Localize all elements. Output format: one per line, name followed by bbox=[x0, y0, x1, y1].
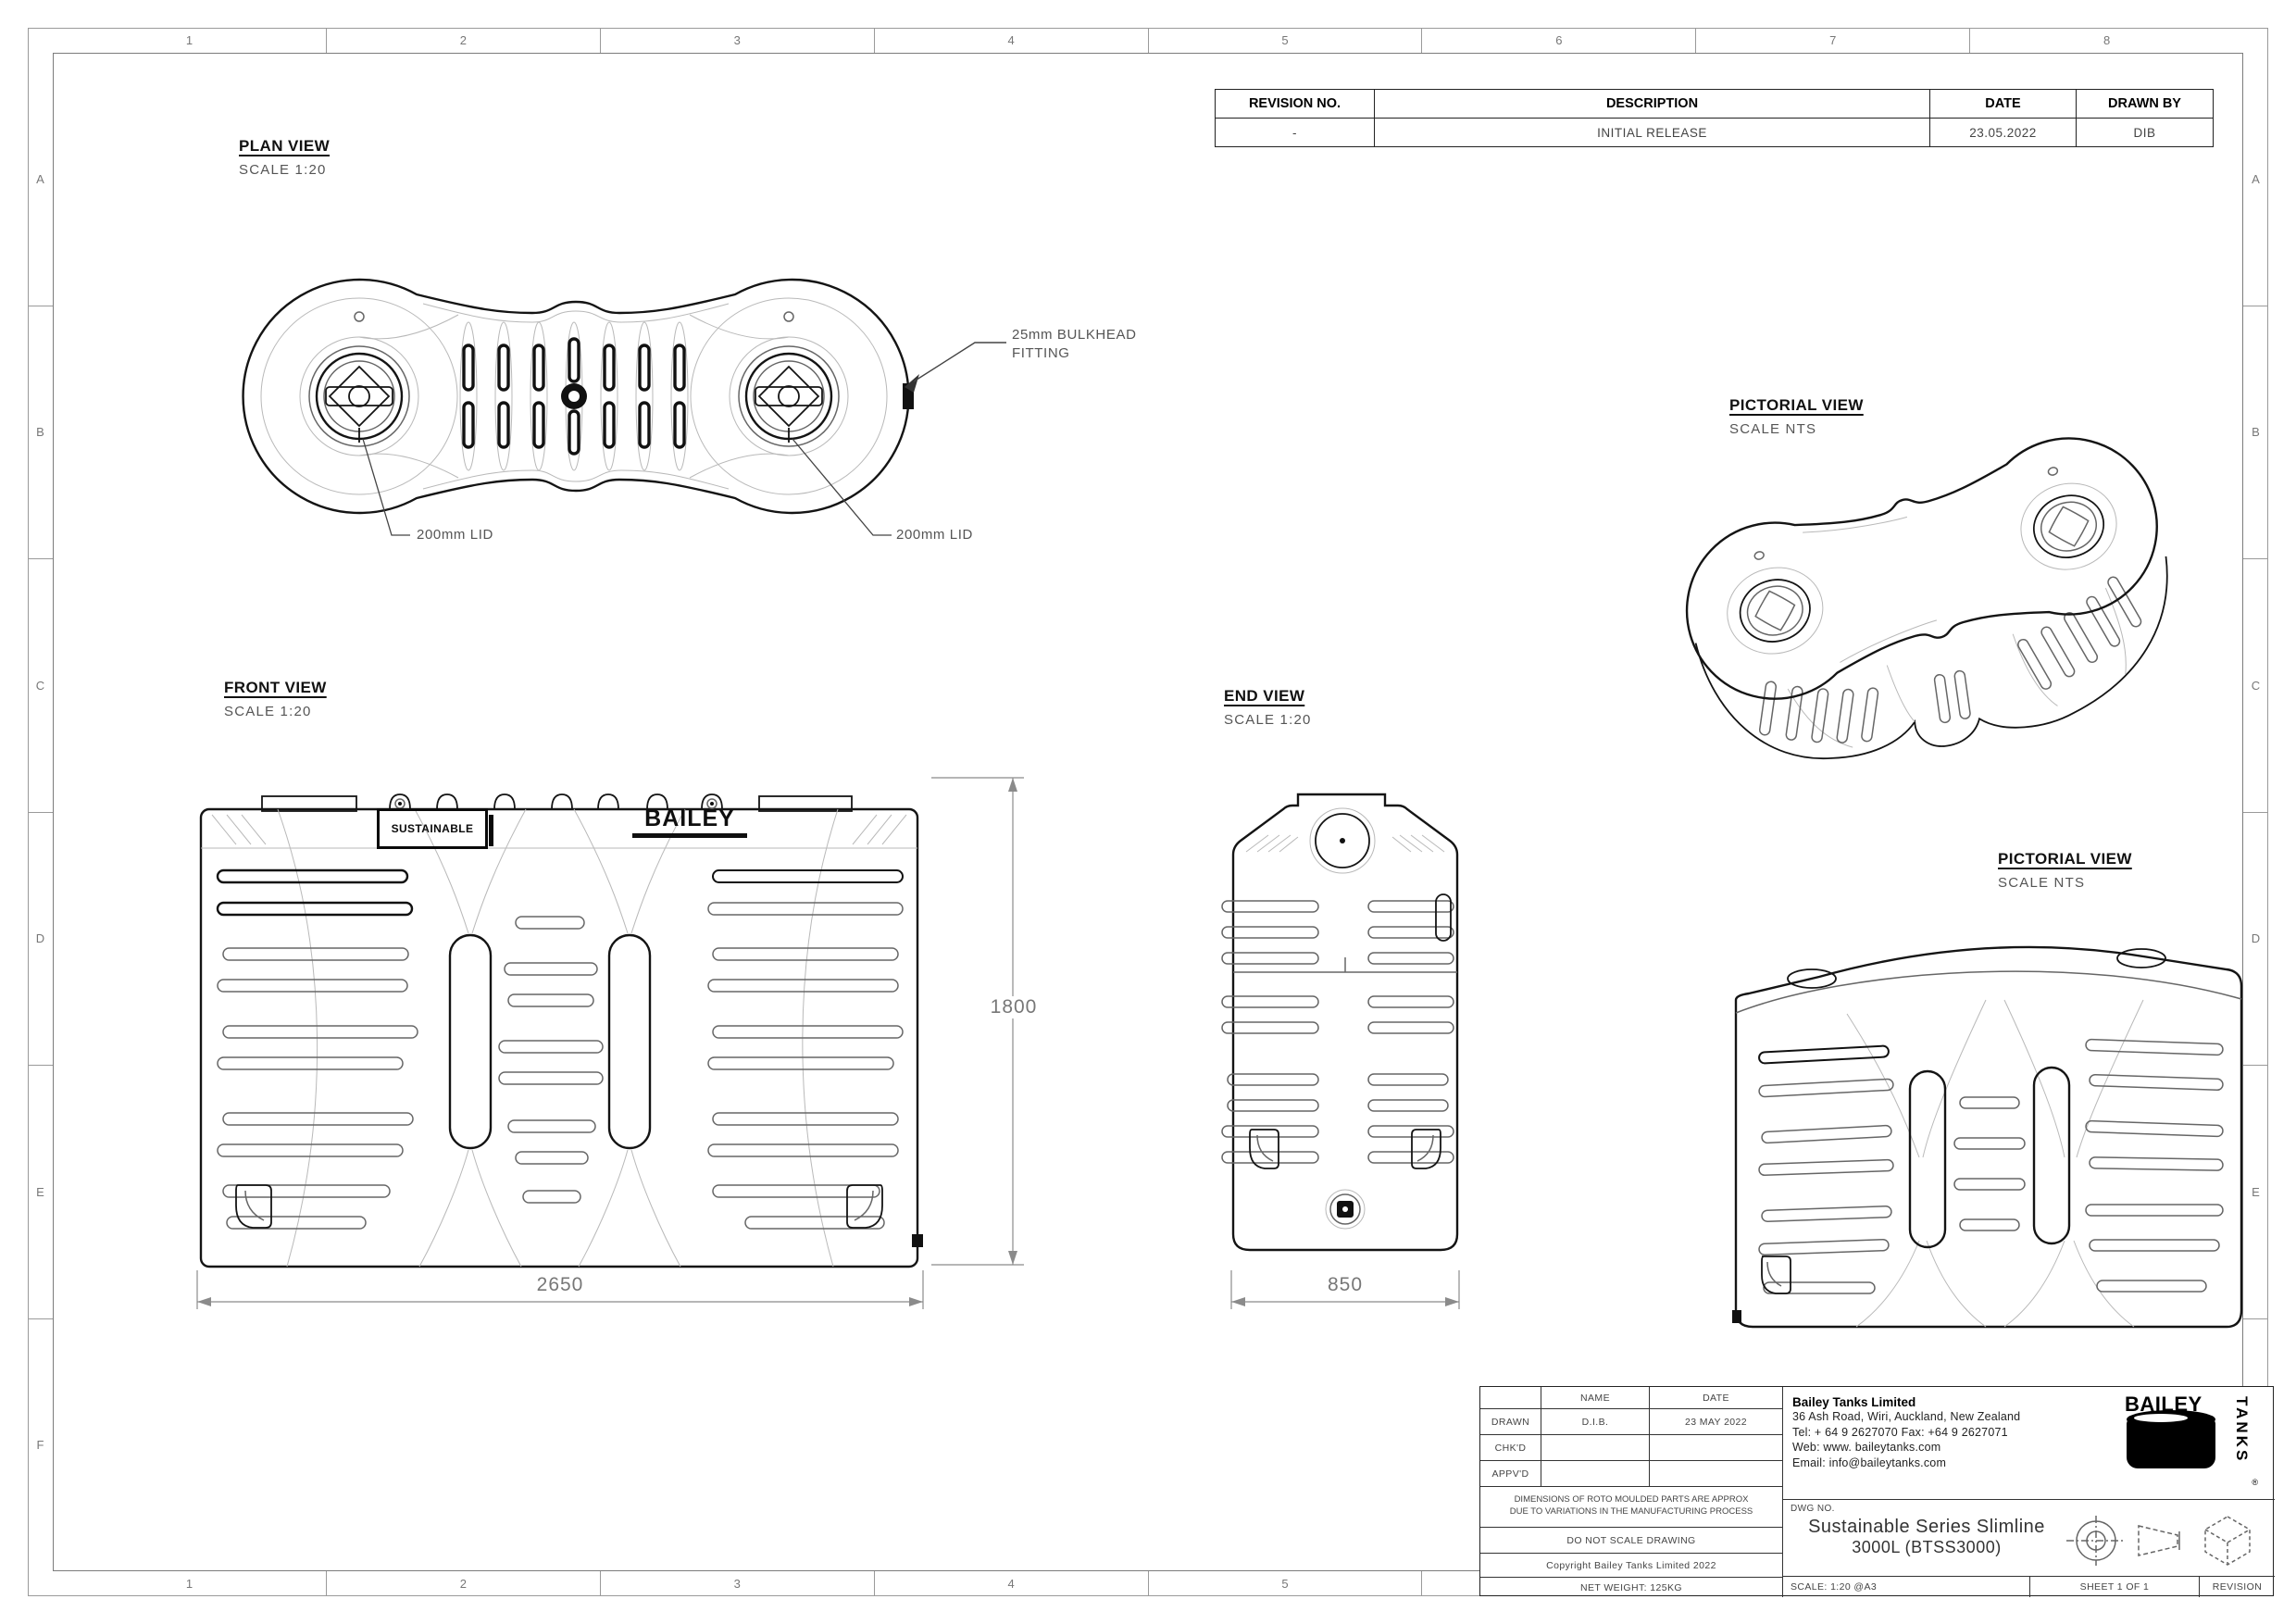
grid-column-label: 1 bbox=[53, 28, 326, 53]
bailey-tanks-logo: BAILEY TANKS ® bbox=[2125, 1394, 2264, 1498]
company-block: Bailey Tanks Limited 36 Ash Road, Wiri, … bbox=[1783, 1387, 2275, 1500]
checked-date bbox=[1650, 1435, 1783, 1461]
front-view-title: FRONT VIEW bbox=[224, 679, 327, 697]
drawn-by-header: DRAWN BY bbox=[2077, 90, 2214, 119]
revision-no-value: - bbox=[1216, 119, 1375, 147]
plan-view-title: PLAN VIEW bbox=[239, 137, 330, 156]
scale-cell: SCALE: 1:20 @A3 bbox=[1783, 1577, 2030, 1597]
grid-row-label: B bbox=[28, 306, 53, 559]
lid-callout-left: 200mm LID bbox=[417, 526, 493, 544]
grid-row-label: E bbox=[28, 1065, 53, 1318]
end-view-label: END VIEW SCALE 1:20 bbox=[1224, 687, 1312, 728]
end-view-scale: SCALE 1:20 bbox=[1224, 712, 1312, 728]
drawn-label: DRAWN bbox=[1480, 1409, 1541, 1435]
drawing-sheet: 12345678 12345678 ABCDEF ABCDEF REVISION… bbox=[0, 0, 2296, 1624]
approval-blank-header bbox=[1480, 1387, 1541, 1409]
pictorial-top-lid-left bbox=[1712, 539, 1833, 665]
pictorial-bottom-outlet bbox=[1762, 1256, 1791, 1293]
grid-row-label: A bbox=[2243, 53, 2268, 306]
drawn-date: 23 MAY 2022 bbox=[1650, 1409, 1783, 1435]
grid-column-label: 5 bbox=[1148, 28, 1422, 53]
grid-column-label: 6 bbox=[1421, 28, 1695, 53]
drawn-name: D.I.B. bbox=[1541, 1409, 1650, 1435]
grid-column-label: 1 bbox=[53, 1571, 326, 1596]
description-value: INITIAL RELEASE bbox=[1375, 119, 1930, 147]
end-drain-fitting bbox=[1326, 1190, 1365, 1229]
grid-column-label: 7 bbox=[1695, 28, 1969, 53]
do-not-scale-note: DO NOT SCALE DRAWING bbox=[1480, 1528, 1783, 1554]
front-view-scale: SCALE 1:20 bbox=[224, 704, 327, 719]
description-header: DESCRIPTION bbox=[1375, 90, 1930, 119]
grid-column-label: 8 bbox=[1969, 28, 2243, 53]
grid-band-left: ABCDEF bbox=[28, 53, 53, 1571]
grid-band-top: 12345678 bbox=[53, 28, 2243, 53]
lid-callout-right: 200mm LID bbox=[896, 526, 973, 544]
revision-table: REVISION NO. DESCRIPTION DATE DRAWN BY -… bbox=[1215, 89, 2214, 147]
checked-label: CHK'D bbox=[1480, 1435, 1541, 1461]
approved-date bbox=[1650, 1461, 1783, 1487]
plan-view-label: PLAN VIEW SCALE 1:20 bbox=[239, 137, 330, 178]
front-outlet-right bbox=[847, 1185, 882, 1228]
end-view-title: END VIEW bbox=[1224, 687, 1312, 706]
logo-tanks-text: TANKS bbox=[2232, 1396, 2251, 1463]
revision-cell: REVISION bbox=[2200, 1577, 2275, 1597]
tolerance-note-line1: DIMENSIONS OF ROTO MOULDED PARTS ARE APP… bbox=[1480, 1493, 1782, 1505]
pictorial-bottom-label: PICTORIAL VIEW SCALE NTS bbox=[1998, 850, 2132, 891]
approved-name bbox=[1541, 1461, 1650, 1487]
grid-column-label: 5 bbox=[1148, 1571, 1422, 1596]
width-dimension: 2650 bbox=[505, 1274, 616, 1296]
height-dimension-lines bbox=[928, 767, 1029, 1276]
revision-no-header: REVISION NO. bbox=[1216, 90, 1375, 119]
grid-row-label: F bbox=[28, 1318, 53, 1572]
date-header: DATE bbox=[1930, 90, 2077, 119]
registered-mark: ® bbox=[2252, 1478, 2258, 1487]
height-dimension: 1800 bbox=[980, 996, 1047, 1018]
grid-row-label: C bbox=[2243, 558, 2268, 812]
plan-view-drawing bbox=[181, 257, 1014, 563]
tolerance-note-line2: DUE TO VARIATIONS IN THE MANUFACTURING P… bbox=[1480, 1505, 1782, 1518]
bailey-tagline-bar bbox=[632, 833, 747, 838]
title-block: NAME DATE DRAWN D.I.B. 23 MAY 2022 CHK'D… bbox=[1479, 1386, 2274, 1596]
bailey-moulded-logo-text: BAILEY bbox=[632, 807, 747, 831]
tolerance-note: DIMENSIONS OF ROTO MOULDED PARTS ARE APP… bbox=[1480, 1487, 1783, 1528]
sustainable-badge: SUSTAINABLE bbox=[377, 808, 488, 849]
front-view-label: FRONT VIEW SCALE 1:20 bbox=[224, 679, 327, 719]
bulkhead-fitting-callout: 25mm BULKHEAD FITTING bbox=[1012, 326, 1151, 364]
third-angle-projection-icon bbox=[2066, 1513, 2205, 1568]
grid-column-label: 2 bbox=[326, 28, 600, 53]
end-width-dimension: 850 bbox=[1290, 1274, 1401, 1296]
sheet-cell: SHEET 1 OF 1 bbox=[2030, 1577, 2200, 1597]
plan-view-scale: SCALE 1:20 bbox=[239, 162, 330, 178]
company-web: Web: www. baileytanks.com bbox=[1792, 1440, 2121, 1455]
grid-row-label: A bbox=[28, 53, 53, 306]
pictorial-bottom-title: PICTORIAL VIEW bbox=[1998, 850, 2132, 868]
drawn-by-value: DIB bbox=[2077, 119, 2214, 147]
pictorial-top-lid-right bbox=[2005, 455, 2127, 581]
checked-name bbox=[1541, 1435, 1650, 1461]
approval-date-header: DATE bbox=[1650, 1387, 1783, 1409]
grid-column-label: 3 bbox=[600, 28, 874, 53]
front-view-drawing bbox=[190, 767, 930, 1276]
front-recess-left bbox=[450, 935, 491, 1148]
company-phone: Tel: + 64 9 2627070 Fax: +64 9 2627071 bbox=[1792, 1425, 2121, 1441]
net-weight: NET WEIGHT: 125KG bbox=[1480, 1578, 1783, 1597]
company-address: 36 Ash Road, Wiri, Auckland, New Zealand bbox=[1792, 1409, 2121, 1425]
company-email: Email: info@baileytanks.com bbox=[1792, 1455, 2121, 1471]
date-value: 23.05.2022 bbox=[1930, 119, 2077, 147]
grid-column-label: 4 bbox=[874, 1571, 1148, 1596]
end-view-drawing bbox=[1220, 767, 1470, 1271]
grid-column-label: 4 bbox=[874, 28, 1148, 53]
tank-icon bbox=[2127, 1418, 2215, 1468]
drawing-title-line2: 3000L (BTSS3000) bbox=[1783, 1538, 2070, 1557]
grid-row-label: B bbox=[2243, 306, 2268, 559]
pictorial-bottom-scale: SCALE NTS bbox=[1998, 875, 2132, 891]
front-recess-right bbox=[609, 935, 650, 1148]
approved-label: APPV'D bbox=[1480, 1461, 1541, 1487]
company-name: Bailey Tanks Limited bbox=[1792, 1395, 2121, 1409]
dwg-no-block: DWG NO. Sustainable Series Slimline 3000… bbox=[1783, 1500, 2275, 1577]
grid-row-label: C bbox=[28, 558, 53, 812]
grid-column-label: 2 bbox=[326, 1571, 600, 1596]
pictorial-view-bottom-drawing bbox=[1708, 912, 2264, 1356]
drawing-title-line1: Sustainable Series Slimline bbox=[1783, 1517, 2070, 1538]
bailey-moulded-logo: BAILEY bbox=[632, 807, 747, 838]
sustainable-badge-text: SUSTAINABLE bbox=[392, 822, 474, 835]
approval-name-header: NAME bbox=[1541, 1387, 1650, 1409]
pictorial-view-top-drawing bbox=[1648, 412, 2240, 847]
grid-row-label: D bbox=[28, 812, 53, 1066]
grid-column-label: 3 bbox=[600, 1571, 874, 1596]
dwg-no-label: DWG NO. bbox=[1791, 1504, 1835, 1514]
pictorial-bottom-recess-left bbox=[1910, 1071, 1945, 1247]
copyright-note: Copyright Bailey Tanks Limited 2022 bbox=[1480, 1554, 1783, 1578]
revision-table-row: - INITIAL RELEASE 23.05.2022 DIB bbox=[1216, 119, 2214, 147]
revision-table-header-row: REVISION NO. DESCRIPTION DATE DRAWN BY bbox=[1216, 90, 2214, 119]
plan-lid-left bbox=[300, 312, 418, 456]
front-outlet-left bbox=[236, 1185, 271, 1228]
isometric-cube-icon bbox=[2202, 1513, 2253, 1568]
plan-lid-right bbox=[730, 312, 848, 456]
